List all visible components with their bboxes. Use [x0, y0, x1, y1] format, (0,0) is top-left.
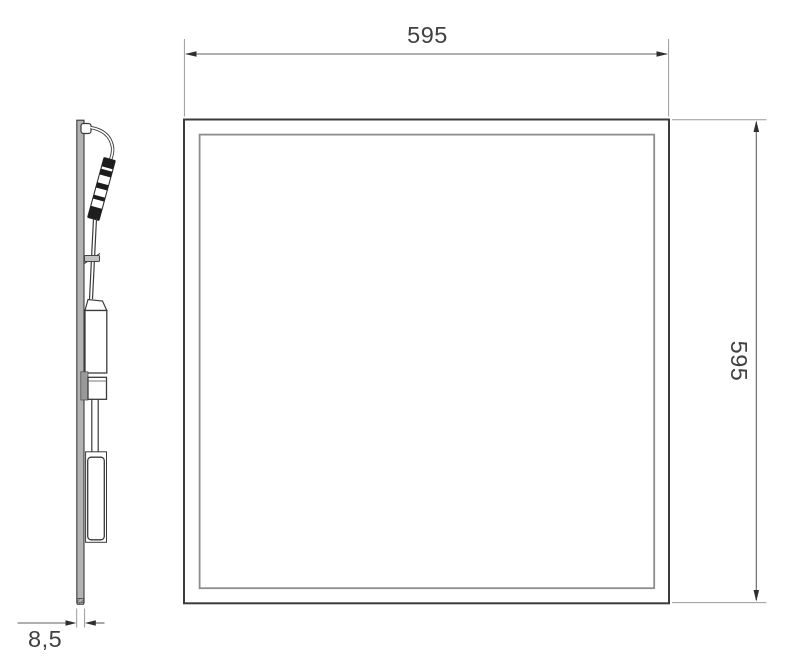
side-view [77, 120, 116, 604]
technical-drawing: 595 595 8,5 [0, 0, 800, 656]
arrowhead-right [66, 620, 77, 626]
dimension-width: 595 [184, 22, 668, 117]
arrowhead-down [754, 590, 760, 602]
height-dimension-label: 595 [726, 341, 752, 382]
dimension-height: 595 [672, 120, 767, 603]
front-view [184, 120, 669, 604]
cable-clip [85, 256, 100, 262]
cable-connector [88, 158, 116, 221]
driver-body [85, 311, 107, 374]
height-dimension-label-group: 595 [726, 341, 752, 382]
front-outer-frame [184, 120, 669, 604]
thickness-dimension-label: 8,5 [28, 626, 62, 652]
width-dimension-label: 595 [407, 22, 448, 48]
panel-end-hatch [77, 599, 83, 605]
lower-unit-box [88, 457, 105, 540]
cable-gland [81, 124, 91, 134]
dimension-thickness: 8,5 [18, 609, 105, 653]
arrowhead-left [185, 51, 197, 57]
power-cable [91, 128, 113, 160]
mounting-bracket [81, 372, 88, 400]
arrowhead-right [657, 51, 669, 57]
panel-profile [77, 120, 84, 603]
driver-cap [85, 300, 107, 311]
arrowhead-left [85, 620, 96, 626]
drawing-canvas: 595 595 8,5 [0, 0, 800, 656]
arrowhead-up [754, 121, 760, 133]
